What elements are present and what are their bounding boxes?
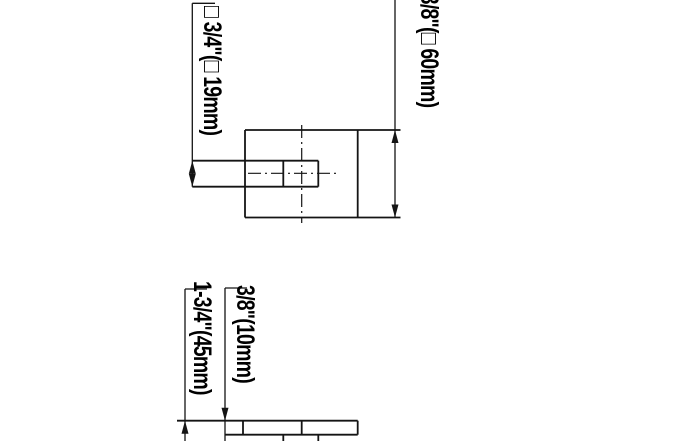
projection-dimension-label: 1-3/4"(45mm) [188,281,216,395]
arrow-up-icon [189,161,196,174]
arrow-up-icon [182,421,189,434]
technical-drawing-canvas: □ 3/4"(□ 19mm) 2-3/8"(□ 60mm) 1-3/4"(45m… [0,0,700,441]
side-view-part-outline [177,421,358,441]
thickness-dimension-label: 3/8"(10mm) [231,285,259,383]
rosette-dimension-label: 2-3/8"(□ 60mm) [415,0,443,107]
spindle-dimension-label: □ 3/4"(□ 19mm) [198,6,226,135]
arrow-down-icon [189,174,196,187]
top-view-centerlines [248,125,340,223]
drawing-linework [0,0,700,441]
arrow-down-icon [222,408,229,421]
top-view-dimension-arrows [189,130,399,218]
arrow-up-icon [392,130,399,143]
arrow-down-icon [392,205,399,218]
